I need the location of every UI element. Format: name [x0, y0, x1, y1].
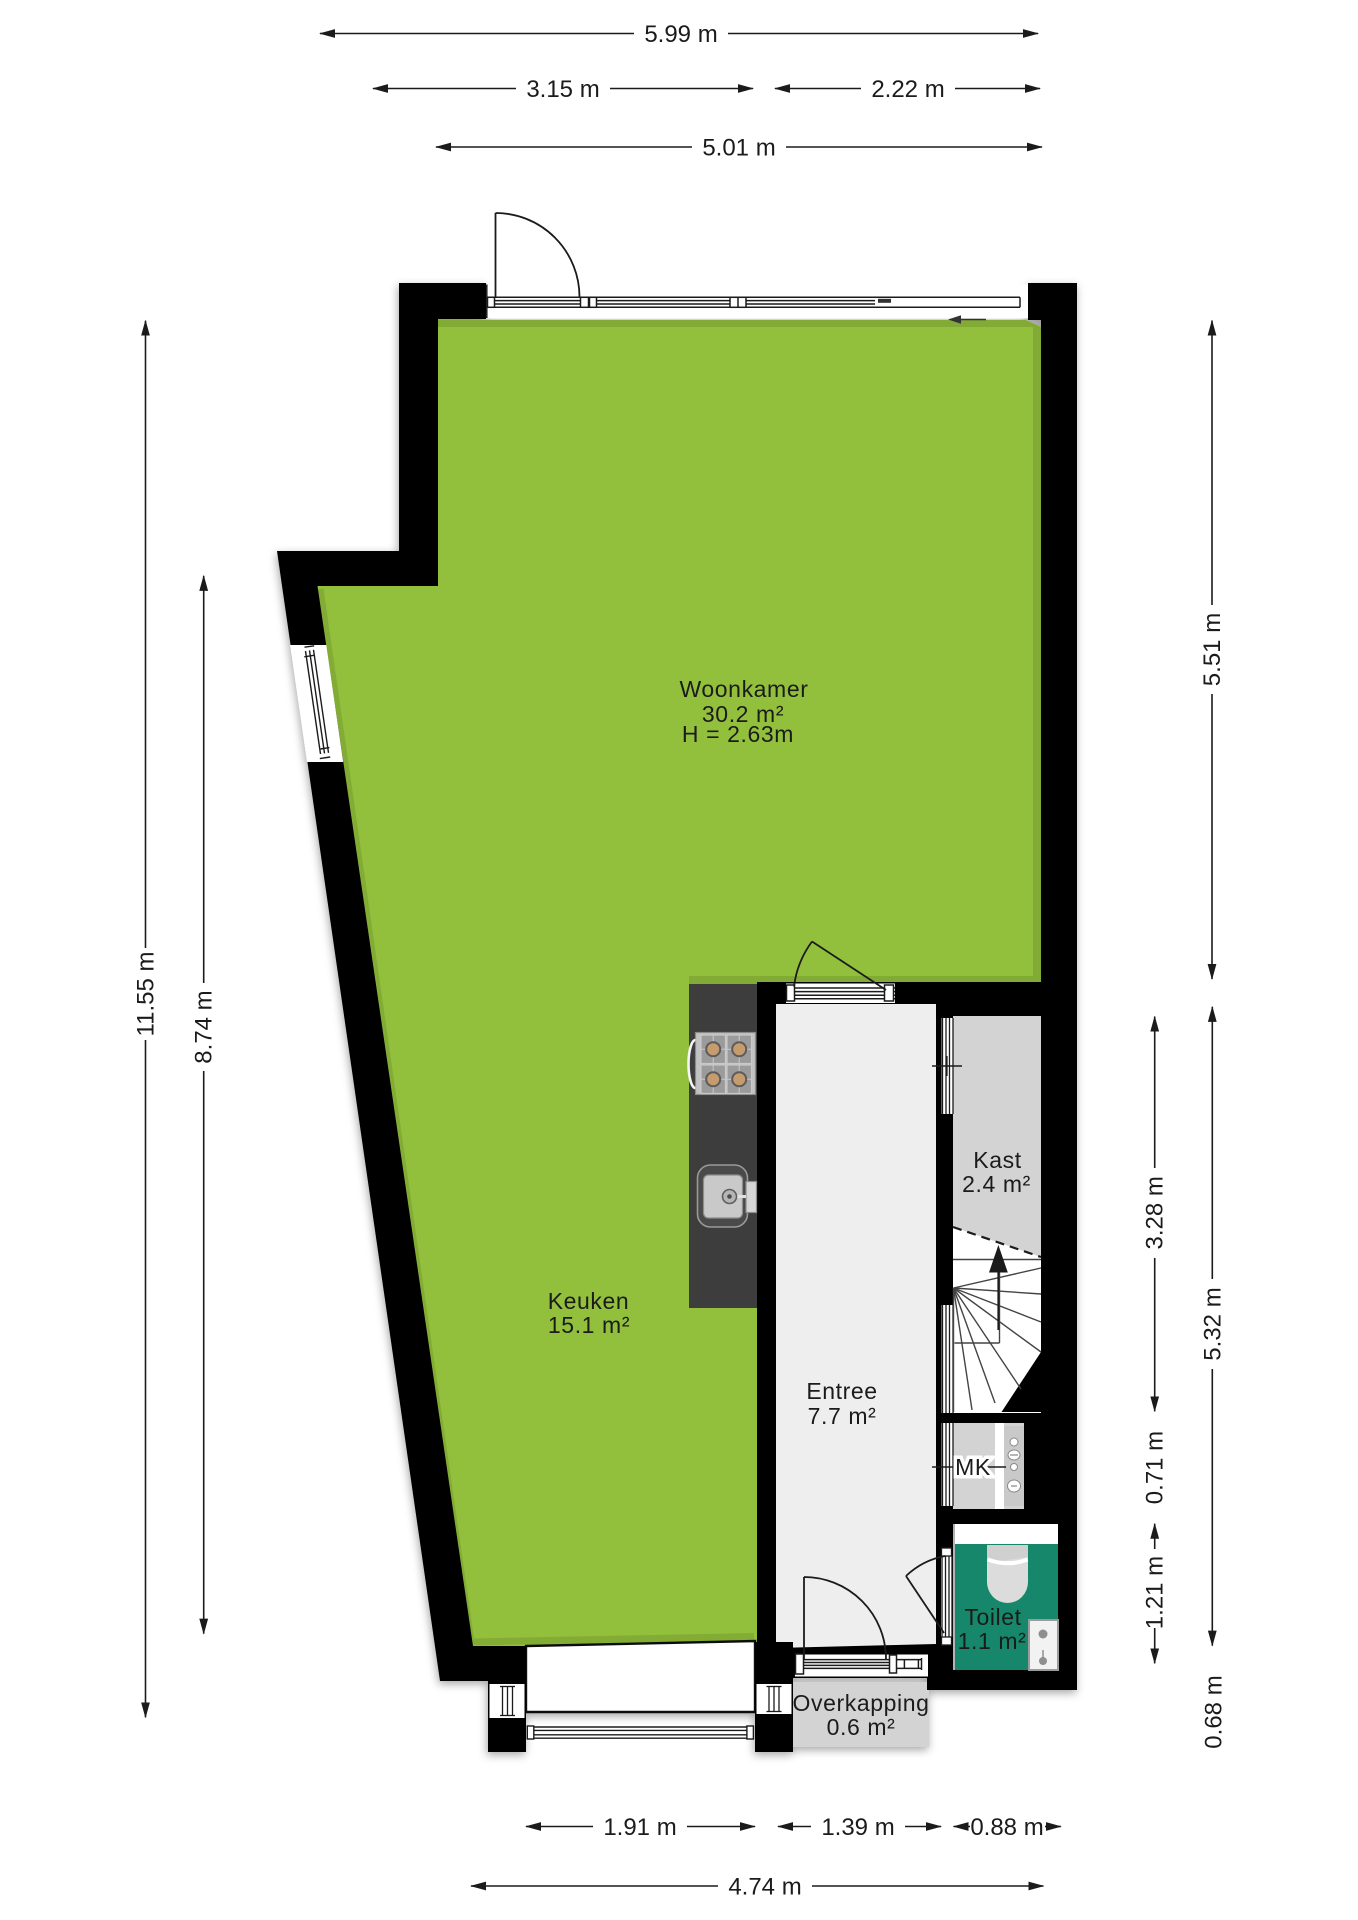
svg-text:3.28 m: 3.28 m	[1142, 1176, 1169, 1249]
svg-text:Woonkamer: Woonkamer	[680, 676, 809, 702]
svg-text:5.01 m: 5.01 m	[702, 135, 775, 162]
svg-text:11.55 m: 11.55 m	[133, 952, 160, 1037]
svg-text:0.71 m: 0.71 m	[1142, 1431, 1169, 1504]
svg-text:1.1 m²: 1.1 m²	[958, 1628, 1027, 1654]
svg-text:1.39 m: 1.39 m	[821, 1814, 894, 1841]
svg-text:0.88 m: 0.88 m	[970, 1814, 1043, 1841]
svg-text:7.7 m²: 7.7 m²	[808, 1403, 877, 1429]
svg-text:1.91 m: 1.91 m	[603, 1814, 676, 1841]
svg-text:5.51 m: 5.51 m	[1199, 613, 1226, 686]
svg-text:5.32 m: 5.32 m	[1199, 1287, 1226, 1360]
svg-text:Overkapping: Overkapping	[792, 1690, 929, 1716]
svg-text:Keuken: Keuken	[548, 1288, 630, 1314]
svg-text:3.15 m: 3.15 m	[526, 76, 599, 103]
svg-text:MK: MK	[955, 1454, 991, 1480]
svg-text:Kast: Kast	[973, 1147, 1021, 1173]
svg-text:1.21 m: 1.21 m	[1142, 1556, 1169, 1629]
svg-text:15.1 m²: 15.1 m²	[548, 1312, 630, 1338]
svg-text:0.6 m²: 0.6 m²	[827, 1714, 896, 1740]
svg-text:4.74 m: 4.74 m	[728, 1874, 801, 1901]
svg-text:Entree: Entree	[806, 1378, 877, 1404]
svg-text:H = 2.63m: H = 2.63m	[682, 721, 794, 747]
svg-text:Toilet: Toilet	[964, 1604, 1021, 1630]
svg-text:2.22 m: 2.22 m	[871, 76, 944, 103]
svg-text:5.99 m: 5.99 m	[644, 21, 717, 48]
svg-text:8.74 m: 8.74 m	[191, 990, 218, 1063]
svg-text:2.4 m²: 2.4 m²	[962, 1171, 1031, 1197]
svg-text:0.68 m: 0.68 m	[1200, 1675, 1227, 1748]
